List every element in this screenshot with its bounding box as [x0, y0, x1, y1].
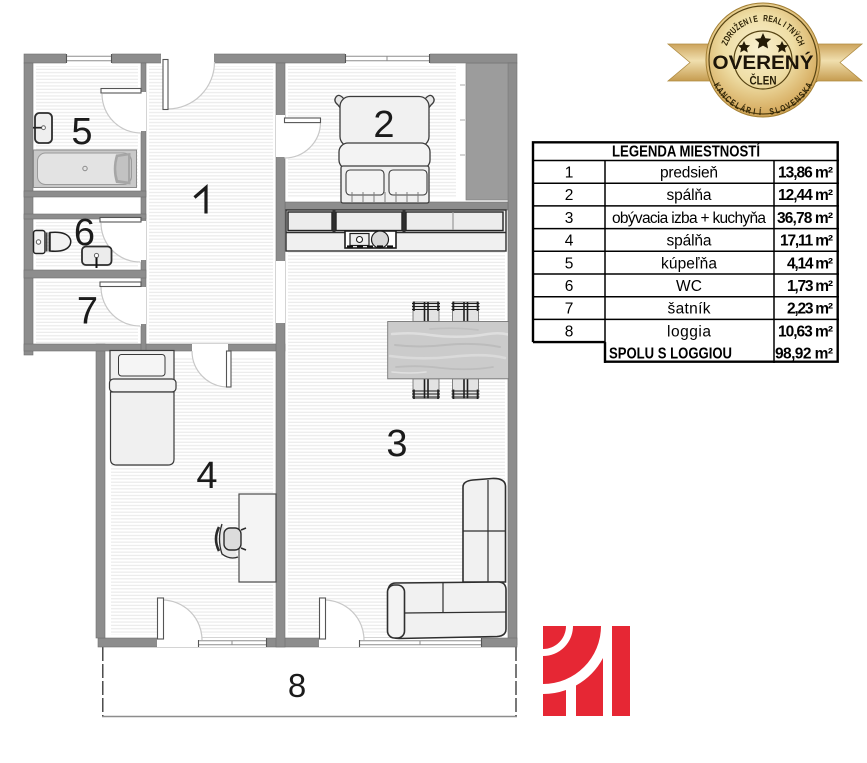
svg-text:spálňa: spálňa	[667, 187, 712, 204]
svg-text:6: 6	[565, 278, 574, 295]
svg-text:7: 7	[565, 301, 574, 318]
svg-text:4,14 m²: 4,14 m²	[787, 255, 833, 272]
svg-text:LEGENDA MIESTNOSTÍ: LEGENDA MIESTNOSTÍ	[612, 142, 760, 161]
svg-text:obývacia izba + kuchyňa: obývacia izba + kuchyňa	[612, 210, 766, 227]
svg-text:4: 4	[196, 455, 217, 497]
svg-text:5: 5	[565, 255, 574, 272]
svg-text:šatník: šatník	[668, 301, 711, 318]
svg-text:ČLEN: ČLEN	[750, 75, 777, 88]
svg-text:10,63 m²: 10,63 m²	[778, 323, 833, 340]
svg-text:1,73 m²: 1,73 m²	[787, 278, 833, 295]
svg-text:8: 8	[565, 323, 574, 340]
svg-text:2,23 m²: 2,23 m²	[787, 301, 833, 318]
svg-text:2: 2	[373, 104, 394, 146]
svg-text:5: 5	[71, 111, 92, 153]
svg-text:predsieň: predsieň	[660, 165, 718, 182]
svg-text:spálňa: spálňa	[667, 233, 712, 250]
svg-text:1: 1	[565, 165, 574, 182]
svg-text:WC: WC	[676, 278, 702, 295]
svg-text:OVERENÝ: OVERENÝ	[713, 50, 814, 74]
svg-text:12,44 m²: 12,44 m²	[778, 187, 833, 204]
svg-text:3: 3	[386, 423, 407, 465]
svg-text:4: 4	[565, 233, 574, 250]
svg-text:7: 7	[77, 291, 98, 333]
svg-text:2: 2	[565, 187, 574, 204]
svg-text:6: 6	[74, 212, 95, 254]
svg-text:98,92 m²: 98,92 m²	[775, 346, 833, 363]
svg-text:kúpeľňa: kúpeľňa	[661, 255, 717, 272]
svg-text:3: 3	[565, 210, 574, 227]
svg-text:36,78 m²: 36,78 m²	[777, 210, 833, 227]
svg-text:8: 8	[288, 667, 306, 704]
svg-text:SPOLU S LOGGIOU: SPOLU S LOGGIOU	[609, 346, 732, 363]
svg-text:13,86 m²: 13,86 m²	[778, 165, 833, 182]
svg-text:17,11 m²: 17,11 m²	[780, 233, 833, 250]
svg-text:loggia: loggia	[667, 323, 711, 340]
